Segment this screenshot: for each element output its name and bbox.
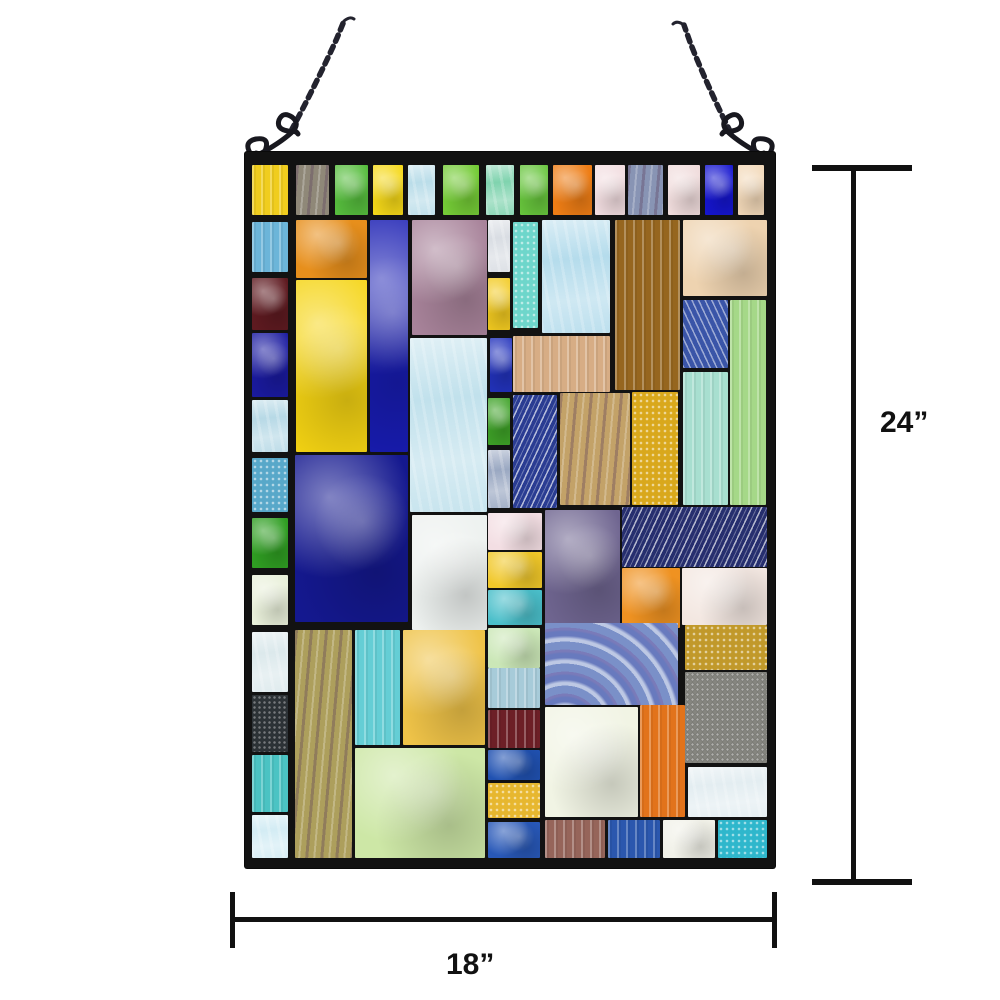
glass-piece (705, 165, 733, 215)
glass-piece (252, 222, 288, 272)
glass-piece (683, 220, 767, 296)
glass-piece (486, 165, 514, 215)
height-dimension-cap-top (812, 165, 912, 171)
glass-piece (520, 165, 548, 215)
glass-piece (553, 165, 592, 215)
glass-piece (688, 767, 767, 817)
glass-piece (252, 400, 288, 452)
glass-piece (628, 165, 663, 215)
stained-glass-panel (245, 152, 775, 868)
glass-piece (683, 372, 728, 505)
glass-piece (738, 165, 764, 215)
scroll-bracket-right-icon (722, 115, 772, 156)
glass-piece (545, 623, 678, 705)
width-dimension-tick-left (230, 892, 235, 948)
glass-piece (488, 628, 540, 668)
height-dimension-cap-bottom (812, 879, 912, 885)
glass-piece (412, 515, 487, 630)
glass-piece (295, 455, 408, 622)
glass-piece (355, 630, 400, 745)
glass-piece (488, 513, 542, 550)
width-dimension-tick-right (772, 892, 777, 948)
glass-piece (252, 575, 288, 625)
glass-piece (252, 458, 288, 512)
glass-piece (252, 695, 288, 752)
glass-piece (252, 278, 288, 330)
glass-piece (608, 820, 660, 858)
glass-piece (488, 220, 510, 272)
glass-piece (296, 280, 367, 452)
glass-piece (252, 333, 288, 397)
glass-piece (545, 820, 605, 858)
glass-piece (513, 222, 538, 328)
height-dimension-label: 24” (880, 406, 928, 440)
glass-piece (488, 710, 540, 748)
glass-piece (615, 220, 680, 390)
glass-piece (545, 510, 620, 625)
chain-left-icon (291, 21, 344, 131)
glass-piece (488, 398, 510, 445)
glass-piece (730, 300, 766, 505)
glass-piece (252, 755, 288, 812)
product-image: 24” 18” (0, 0, 1000, 1000)
glass-piece (622, 507, 767, 567)
glass-piece (488, 822, 540, 858)
glass-piece (335, 165, 368, 215)
glass-piece (252, 165, 288, 215)
glass-piece (668, 165, 700, 215)
glass-piece (488, 668, 540, 708)
width-dimension-label: 18” (446, 948, 494, 982)
glass-piece (355, 748, 485, 858)
glass-piece (545, 707, 638, 817)
glass-piece (373, 165, 403, 215)
chain-left-end-hook-icon (344, 18, 354, 21)
width-dimension-line (232, 917, 776, 922)
glass-piece (408, 165, 435, 215)
glass-piece (685, 625, 767, 670)
glass-piece (443, 165, 479, 215)
scroll-bracket-left-icon (248, 115, 298, 156)
glass-piece (595, 165, 625, 215)
glass-piece (513, 395, 557, 508)
glass-piece (412, 220, 487, 335)
chain-right-icon (684, 25, 731, 133)
glass-piece (663, 820, 715, 858)
glass-piece (296, 220, 367, 278)
glass-piece (252, 632, 288, 692)
glass-piece (488, 552, 542, 588)
glass-piece (622, 568, 680, 628)
glass-piece (560, 393, 630, 505)
glass-pieces (245, 152, 775, 868)
glass-piece (488, 783, 540, 818)
glass-piece (718, 820, 767, 858)
chain-right-end-hook-icon (673, 22, 684, 25)
glass-piece (683, 300, 728, 368)
glass-piece (488, 590, 542, 625)
glass-piece (410, 338, 487, 512)
glass-piece (488, 278, 510, 330)
glass-piece (252, 518, 288, 568)
glass-piece (296, 165, 329, 215)
glass-piece (632, 392, 678, 505)
glass-piece (370, 220, 408, 452)
glass-piece (295, 630, 352, 858)
glass-piece (513, 336, 610, 392)
height-dimension-line (851, 168, 856, 882)
glass-piece (252, 815, 288, 858)
glass-piece (490, 338, 512, 392)
glass-piece (685, 672, 767, 763)
glass-piece (488, 750, 540, 780)
glass-piece (682, 568, 767, 625)
glass-piece (403, 630, 485, 745)
glass-piece (640, 705, 685, 817)
glass-piece (488, 450, 510, 508)
glass-piece (542, 220, 610, 333)
